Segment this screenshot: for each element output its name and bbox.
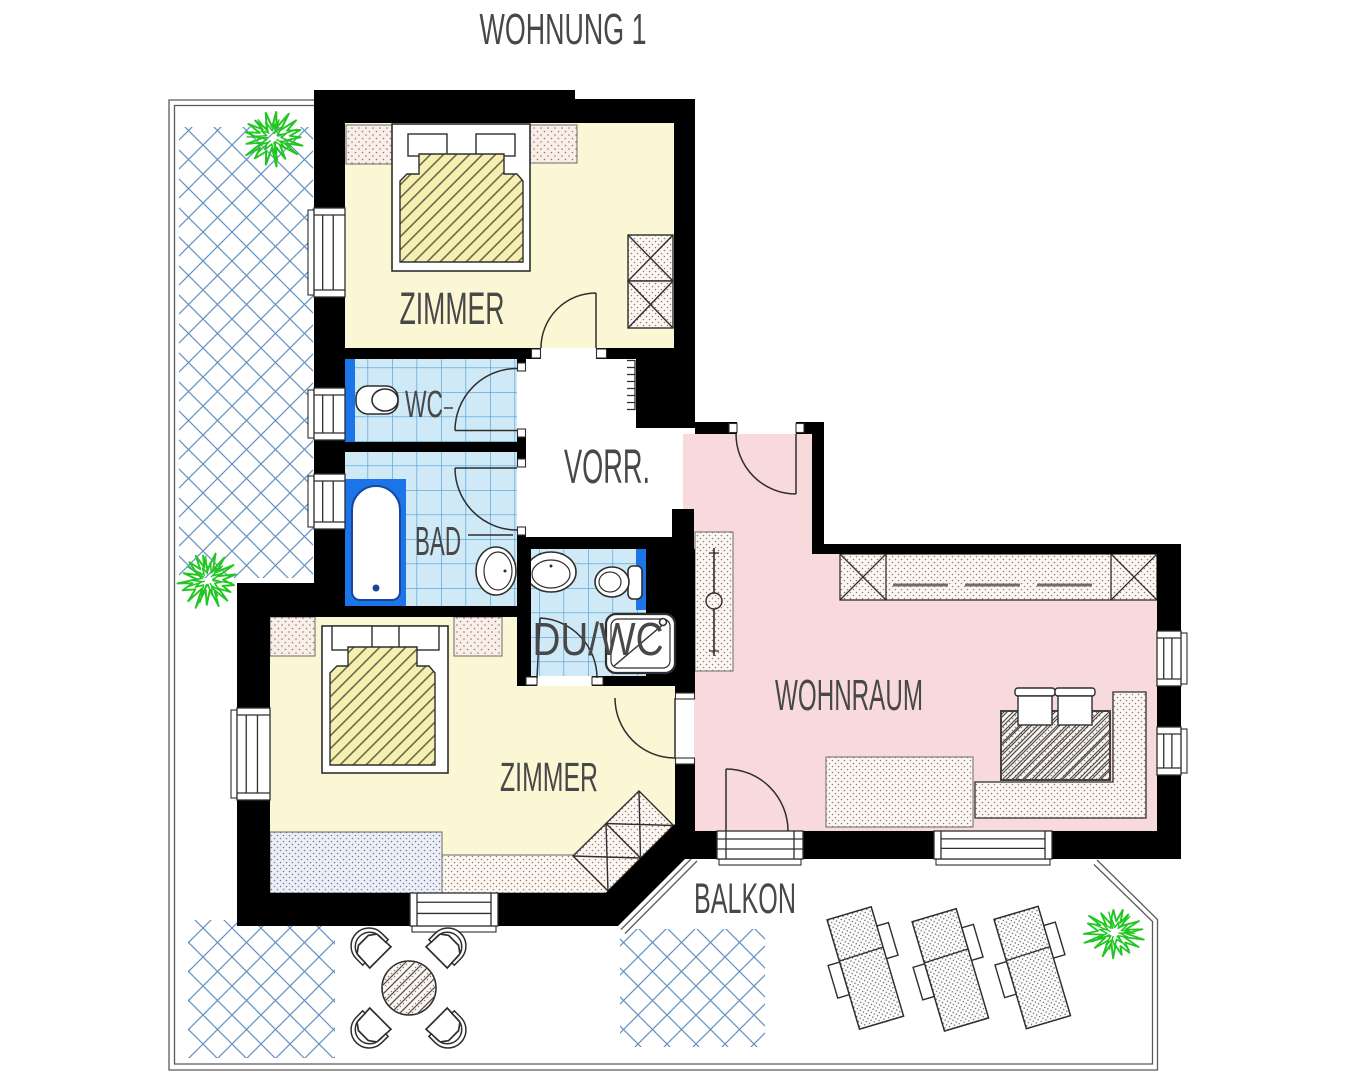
svg-text:BALKON: BALKON xyxy=(694,875,796,923)
svg-text:ZIMMER: ZIMMER xyxy=(500,754,598,800)
svg-text:WOHNRAUM: WOHNRAUM xyxy=(775,671,923,720)
svg-text:ZIMMER: ZIMMER xyxy=(400,283,505,334)
svg-text:WOHNUNG 1: WOHNUNG 1 xyxy=(480,5,647,54)
svg-text:VORR.: VORR. xyxy=(564,441,650,494)
svg-text:WC: WC xyxy=(405,384,443,426)
svg-text:BAD: BAD xyxy=(415,518,461,564)
svg-text:DU/WC: DU/WC xyxy=(533,613,664,665)
